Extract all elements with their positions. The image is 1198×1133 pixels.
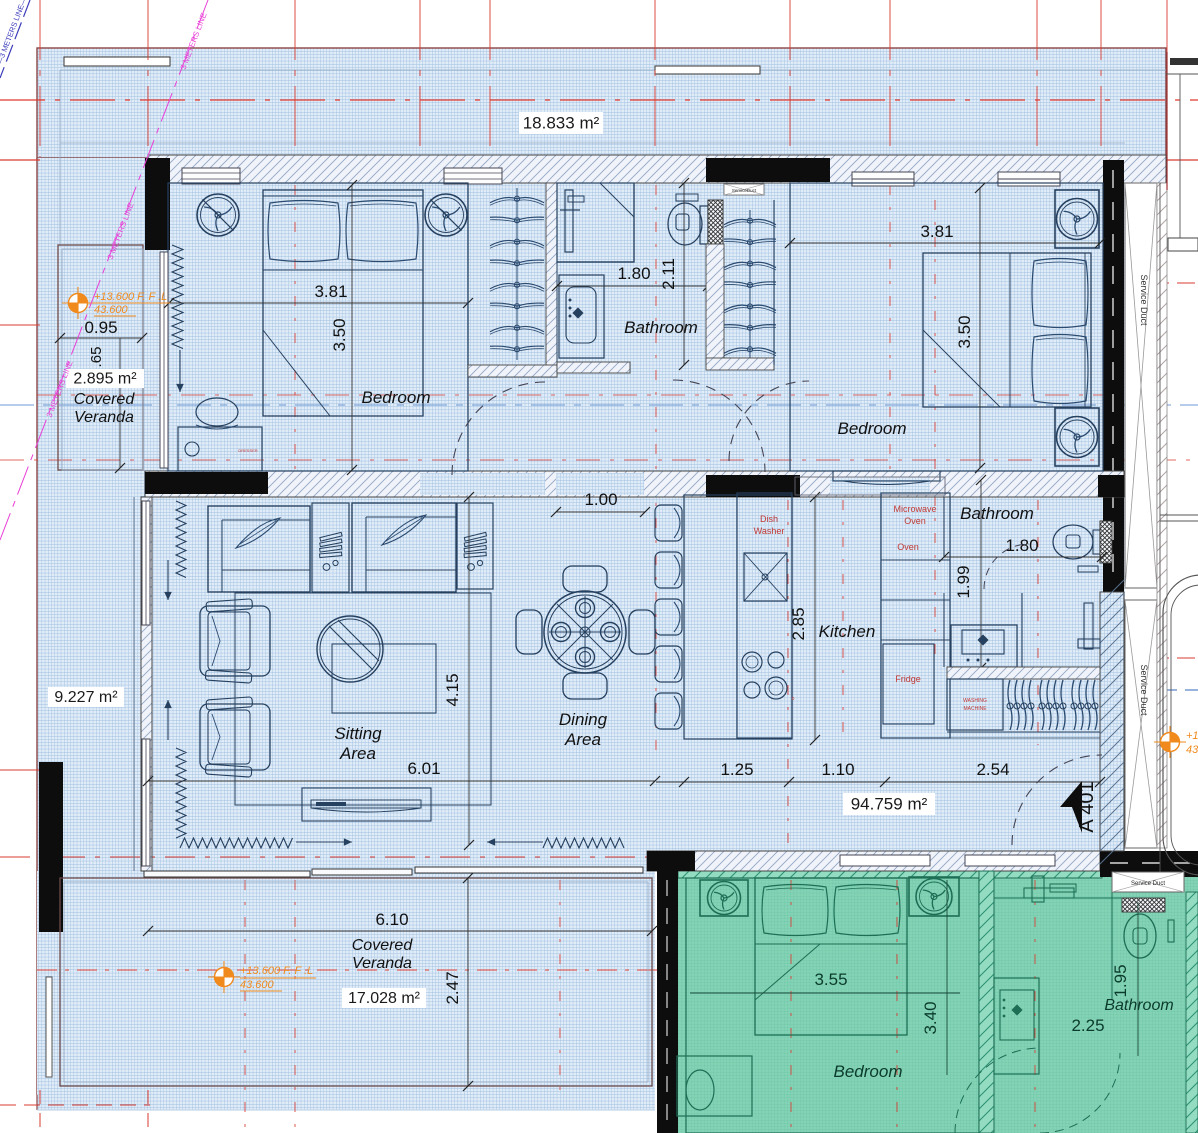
- svg-text:43.600: 43.600: [94, 304, 129, 316]
- svg-text:.65: .65: [88, 347, 105, 368]
- svg-text:2.54: 2.54: [976, 760, 1009, 779]
- svg-text:2.85: 2.85: [789, 607, 808, 640]
- svg-text:3.50: 3.50: [330, 318, 349, 351]
- svg-text:4.15: 4.15: [443, 673, 462, 706]
- svg-text:Service Duct: Service Duct: [1139, 664, 1149, 716]
- svg-text:Bathroom: Bathroom: [960, 504, 1034, 523]
- svg-text:o: o: [792, 696, 795, 702]
- svg-text:1.95: 1.95: [1111, 964, 1130, 997]
- svg-text:MACHINE: MACHINE: [963, 706, 987, 712]
- svg-text:0.95: 0.95: [84, 318, 117, 337]
- svg-text:43: 43: [1186, 744, 1198, 756]
- svg-text:Fridge: Fridge: [895, 674, 921, 684]
- svg-text:1.25: 1.25: [720, 760, 753, 779]
- svg-text:1.10: 1.10: [821, 760, 854, 779]
- svg-text:Bathroom: Bathroom: [1104, 997, 1173, 1014]
- svg-text:17.028 m²: 17.028 m²: [348, 990, 421, 1007]
- svg-text:3.55: 3.55: [814, 970, 847, 989]
- svg-text:2.11: 2.11: [659, 258, 678, 290]
- svg-text:Dining: Dining: [559, 710, 608, 729]
- svg-text:Covered: Covered: [352, 937, 414, 954]
- svg-text:Service Duct: Service Duct: [1139, 274, 1149, 326]
- svg-text:Veranda: Veranda: [352, 955, 412, 972]
- svg-text:3.40: 3.40: [921, 1001, 940, 1034]
- svg-text:2.47: 2.47: [443, 971, 462, 1004]
- svg-text:Area: Area: [564, 730, 601, 749]
- svg-text:DRESSER: DRESSER: [238, 448, 257, 453]
- svg-text:+1: +1: [1186, 730, 1198, 742]
- svg-text:A 401: A 401: [1076, 781, 1098, 832]
- svg-text:6.10: 6.10: [375, 910, 408, 929]
- svg-text:1.00: 1.00: [584, 490, 617, 509]
- svg-text:1.80: 1.80: [1005, 536, 1038, 555]
- svg-text:Service Duct: Service Duct: [1131, 881, 1165, 887]
- svg-text:9.227 m²: 9.227 m²: [54, 689, 118, 706]
- svg-text:Bedroom: Bedroom: [838, 419, 907, 438]
- svg-text:WASHING: WASHING: [963, 698, 987, 704]
- svg-text:+13.600 F. F .L: +13.600 F. F .L: [240, 965, 313, 977]
- svg-text:3.81: 3.81: [920, 222, 953, 241]
- svg-text:3.81: 3.81: [314, 282, 347, 301]
- svg-text:94.759 m²: 94.759 m²: [851, 795, 928, 814]
- svg-text:Bedroom: Bedroom: [362, 388, 431, 407]
- svg-text:Bedroom: Bedroom: [834, 1062, 903, 1081]
- svg-text:1.99: 1.99: [954, 565, 973, 598]
- svg-text:Washer: Washer: [754, 526, 785, 536]
- svg-text:Veranda: Veranda: [74, 409, 134, 426]
- svg-text:Dish: Dish: [760, 514, 778, 524]
- svg-text:Area: Area: [339, 744, 376, 763]
- svg-text:Oven: Oven: [897, 542, 919, 552]
- svg-text:43.600: 43.600: [240, 979, 275, 991]
- svg-text:2.895 m²: 2.895 m²: [73, 370, 137, 387]
- svg-text:Sitting: Sitting: [334, 724, 382, 743]
- svg-text:Covered: Covered: [74, 391, 136, 408]
- svg-text:Bathroom: Bathroom: [624, 318, 698, 337]
- svg-text:Oven: Oven: [904, 516, 926, 526]
- svg-text:Kitchen: Kitchen: [819, 622, 876, 641]
- svg-text:6.01: 6.01: [407, 759, 440, 778]
- svg-text:Microwave: Microwave: [893, 504, 936, 514]
- svg-text:2.25: 2.25: [1071, 1016, 1104, 1035]
- svg-text:1.80: 1.80: [617, 264, 650, 283]
- svg-text:3.50: 3.50: [955, 315, 974, 348]
- svg-text:18.833 m²: 18.833 m²: [523, 114, 600, 133]
- svg-text:+13.600 F. F .L: +13.600 F. F .L: [94, 291, 167, 303]
- svg-text:ServiceDuct: ServiceDuct: [732, 188, 757, 193]
